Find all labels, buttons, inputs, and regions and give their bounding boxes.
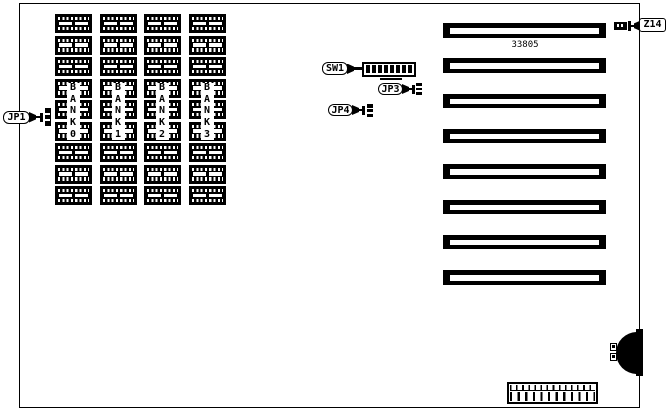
memory-chip <box>189 14 226 33</box>
z14-label: Z14 <box>639 18 666 32</box>
bank-label-char: B <box>115 83 121 94</box>
jp1-label: JP1 <box>3 111 30 124</box>
bank-label-char: A <box>159 95 165 106</box>
part-number: 33805 <box>495 41 555 50</box>
memory-chip <box>100 57 137 76</box>
bank-label-char: N <box>70 106 76 117</box>
din-connector-pin <box>610 353 617 362</box>
bank-label: BANK2 <box>156 83 169 140</box>
jp1-pointer-end <box>40 113 43 123</box>
expansion-slot-2 <box>443 58 606 73</box>
bank-label-char: A <box>70 95 76 106</box>
memory-chip <box>189 36 226 55</box>
bank-label-char: B <box>70 83 76 94</box>
bank-label-char: N <box>159 106 165 117</box>
jp4-jumper <box>367 104 374 117</box>
memory-bank-column-2: BANK2 <box>144 14 181 206</box>
memory-chip <box>55 57 92 76</box>
memory-chip <box>189 143 226 162</box>
bank-label-char: N <box>115 106 121 117</box>
memory-chip <box>55 36 92 55</box>
memory-chip <box>55 14 92 33</box>
bank-label: BANK0 <box>67 83 80 140</box>
dip-switch-sw1 <box>362 62 416 77</box>
bank-label-char: 1 <box>115 130 121 141</box>
dip-switch-position-1 <box>366 65 371 73</box>
jp1-jumper <box>45 108 51 126</box>
bank-label-char: K <box>115 118 121 129</box>
bank-label-char: 2 <box>159 130 165 141</box>
dip-switch-position-7 <box>402 65 407 73</box>
bank-label-char: B <box>159 83 165 94</box>
bank-label-char: 0 <box>70 130 76 141</box>
memory-chip <box>100 186 137 205</box>
expansion-slot-6 <box>443 200 606 215</box>
bottom-connector-pin-row-bottom <box>510 392 595 401</box>
bank-label-char: 3 <box>204 130 210 141</box>
motherboard-diagram: BANK0BANK1BANK2BANK3 JP1 SW1 JP3 JP4 Z14… <box>0 0 669 415</box>
dip-switch-position-8 <box>408 65 413 73</box>
memory-bank-column-0: BANK0 <box>55 14 92 206</box>
din-connector-pin <box>610 343 617 352</box>
bank-label-char: K <box>70 118 76 129</box>
dip-switch-underline <box>380 78 402 80</box>
memory-chip <box>100 143 137 162</box>
bank-label: BANK3 <box>201 83 214 140</box>
memory-chip <box>189 165 226 184</box>
memory-chip <box>100 14 137 33</box>
dip-switch-position-6 <box>396 65 401 73</box>
bank-label-char: A <box>115 95 121 106</box>
jp3-pointer-end <box>412 85 415 94</box>
memory-bank-column-3: BANK3 <box>189 14 226 206</box>
dip-switch-position-2 <box>372 65 377 73</box>
memory-chip <box>189 57 226 76</box>
bank-label-char: A <box>204 95 210 106</box>
bottom-connector-pin-row-top <box>510 385 595 391</box>
memory-chip <box>55 186 92 205</box>
jp4-label: JP4 <box>328 104 353 116</box>
memory-chip <box>100 165 137 184</box>
sw1-pointer-line <box>352 67 362 69</box>
expansion-slot-5 <box>443 164 606 179</box>
bank-label-char: K <box>204 118 210 129</box>
memory-chip <box>189 186 226 205</box>
sw1-label: SW1 <box>322 62 348 75</box>
bank-label-char: K <box>159 118 165 129</box>
bottom-edge-connector <box>507 382 598 404</box>
bank-label-char: N <box>204 106 210 117</box>
jp3-jumper <box>416 83 423 96</box>
jp4-pointer-end <box>362 106 365 115</box>
jp3-label: JP3 <box>378 83 403 95</box>
expansion-slot-4 <box>443 129 606 144</box>
memory-chip <box>144 186 181 205</box>
memory-chip <box>100 36 137 55</box>
dip-switch-position-3 <box>378 65 383 73</box>
memory-chip <box>144 14 181 33</box>
memory-chip <box>144 143 181 162</box>
memory-chip <box>55 143 92 162</box>
z14-component-pin <box>617 24 619 27</box>
bank-label: BANK1 <box>112 83 125 140</box>
memory-chip <box>55 165 92 184</box>
memory-chip <box>144 57 181 76</box>
expansion-slot-7 <box>443 235 606 250</box>
bank-label-char: B <box>204 83 210 94</box>
memory-chip <box>144 36 181 55</box>
expansion-slot-1 <box>443 23 606 38</box>
memory-chip <box>144 165 181 184</box>
expansion-slot-8 <box>443 270 606 285</box>
dip-switch-position-5 <box>390 65 395 73</box>
z14-component-pin <box>621 24 623 27</box>
memory-bank-column-1: BANK1 <box>100 14 137 206</box>
expansion-slot-3 <box>443 94 606 109</box>
dip-switch-position-4 <box>384 65 389 73</box>
